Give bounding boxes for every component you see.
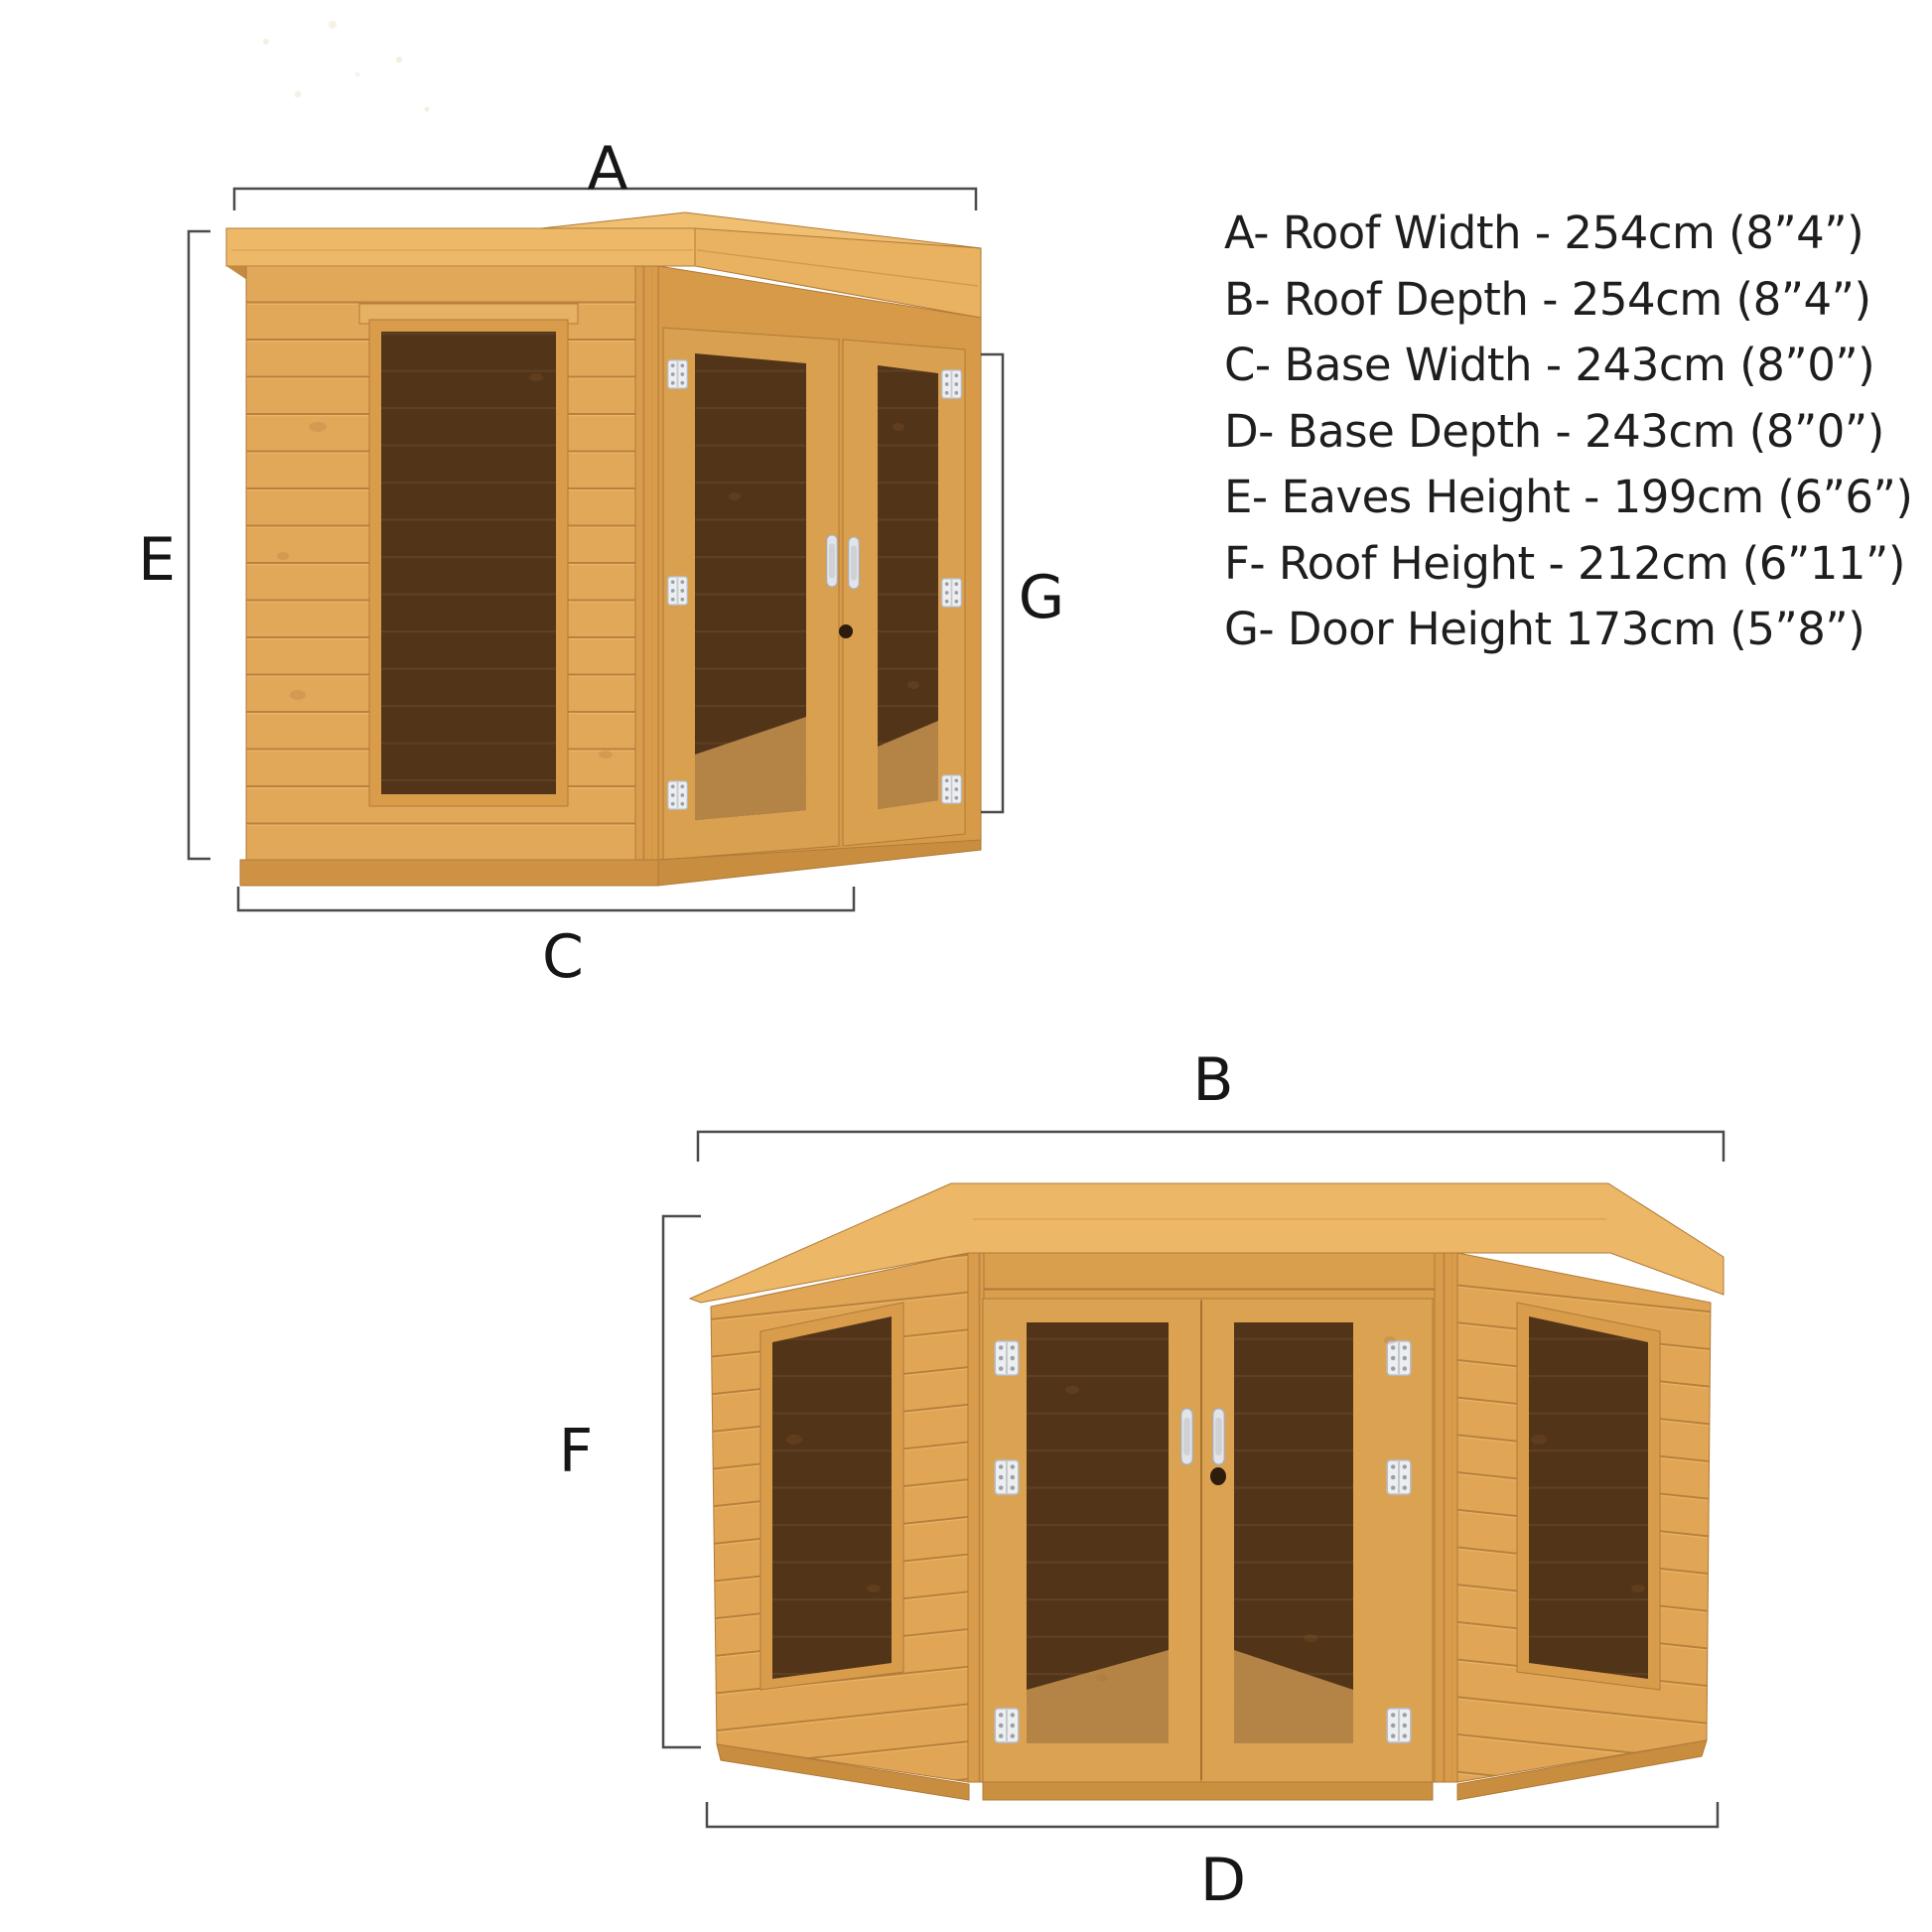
- product-dimensions-diagram: A E G C: [0, 0, 1932, 1932]
- dim-line-base-width: C: [238, 887, 854, 992]
- dimension-key-list: A- Roof Width - 254cm (8”4”) B- Roof Dep…: [1224, 201, 1912, 663]
- keyhole: [839, 624, 853, 638]
- side-window-glass: [381, 332, 556, 794]
- front-bay-header: [969, 1253, 1457, 1299]
- dim-label-c: C: [542, 922, 584, 992]
- dim-label-b: B: [1192, 1045, 1233, 1115]
- dim-label-f: F: [559, 1417, 594, 1486]
- front-right-window-glass: [1529, 1316, 1648, 1679]
- dim-label-a: A: [587, 134, 627, 204]
- dim-line-door-height: G: [981, 354, 1064, 812]
- spec-line-roof-depth: B- Roof Depth - 254cm (8”4”): [1224, 267, 1912, 334]
- spec-line-base-depth: D- Base Depth - 243cm (8”0”): [1224, 399, 1912, 466]
- image-artifacts: [263, 21, 430, 112]
- spec-line-roof-width: A- Roof Width - 254cm (8”4”): [1224, 201, 1912, 267]
- spec-line-door-height: G- Door Height 173cm (5”8”): [1224, 597, 1912, 663]
- dim-line-roof-width: A: [234, 134, 976, 210]
- front-left-wing: [711, 1253, 969, 1800]
- front-threshold: [983, 1782, 1433, 1800]
- side-door-bay: [658, 266, 981, 874]
- dim-label-d: D: [1200, 1846, 1246, 1915]
- dim-label-g: G: [1019, 563, 1065, 632]
- front-left-window: [760, 1303, 903, 1690]
- dim-line-base-depth: D: [707, 1802, 1718, 1915]
- front-right-window: [1517, 1303, 1660, 1690]
- spec-line-eaves-height: E- Eaves Height - 199cm (6”6”): [1224, 465, 1912, 531]
- corner-summerhouse-side-view: [226, 212, 981, 886]
- spec-line-roof-height: F- Roof Height - 212cm (6”11”): [1224, 531, 1912, 598]
- dim-label-e: E: [138, 525, 176, 595]
- corner-summerhouse-front-view: [690, 1183, 1724, 1800]
- front-right-wing: [1457, 1253, 1711, 1800]
- front-door-bay: [968, 1253, 1457, 1800]
- spec-line-base-width: C- Base Width - 243cm (8”0”): [1224, 333, 1912, 399]
- side-window: [359, 304, 578, 806]
- dim-line-roof-depth: B: [698, 1045, 1724, 1162]
- dim-line-roof-height: F: [559, 1216, 701, 1747]
- keyhole: [1210, 1467, 1226, 1485]
- front-left-window-glass: [772, 1316, 892, 1679]
- dim-line-eaves-height: E: [138, 231, 210, 859]
- side-door-left: [663, 328, 839, 860]
